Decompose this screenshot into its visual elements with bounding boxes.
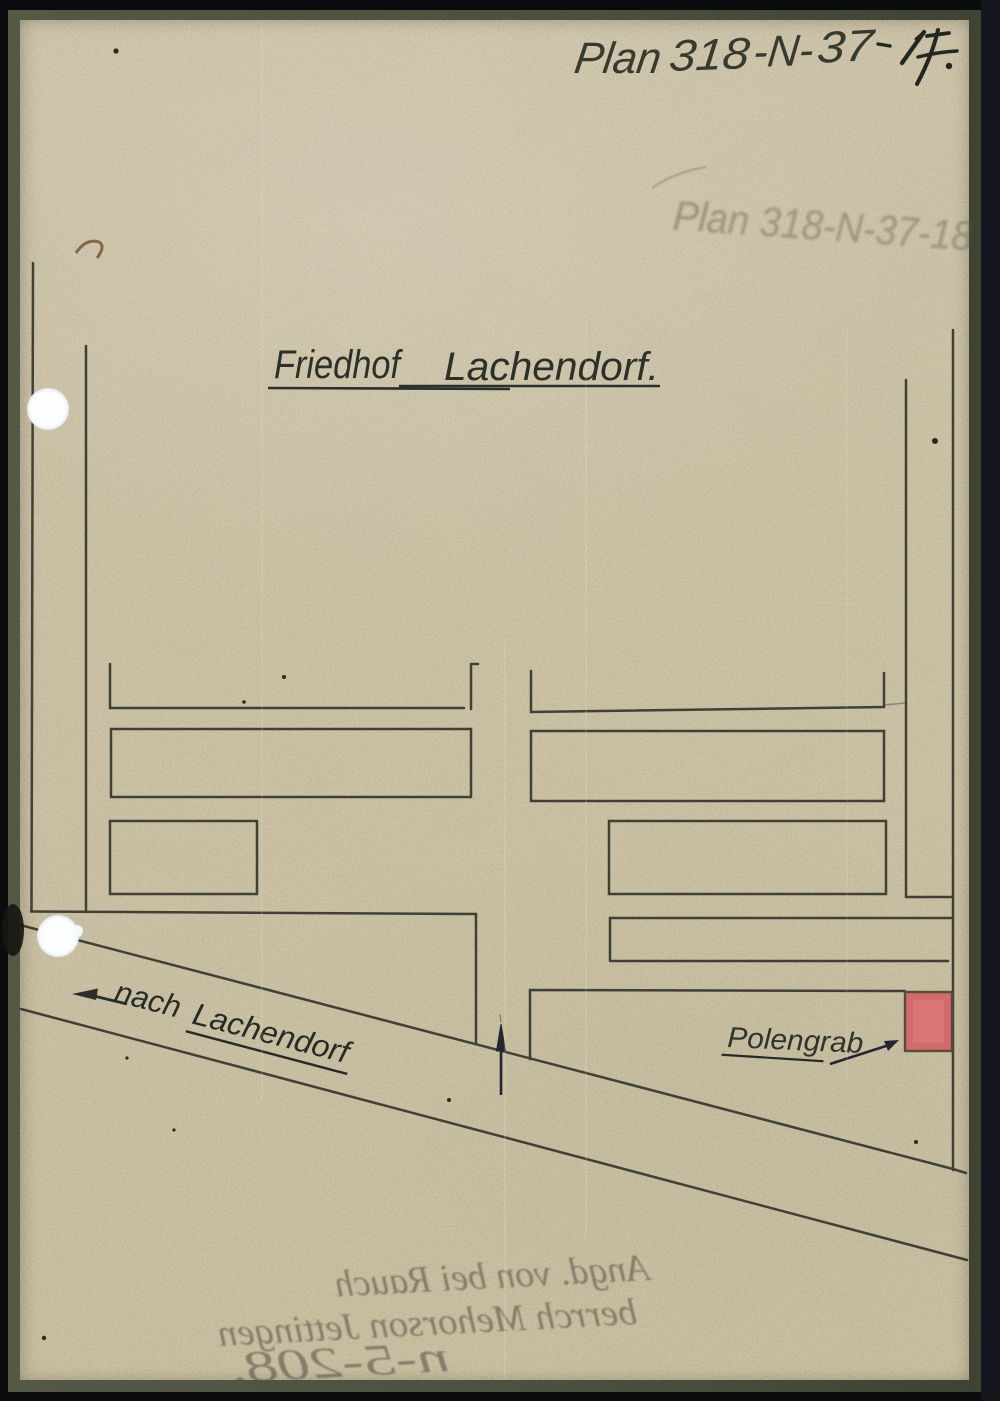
- svg-text:318: 318: [667, 29, 753, 81]
- svg-text:Polengrab: Polengrab: [727, 1022, 864, 1060]
- svg-text:37: 37: [815, 21, 877, 73]
- svg-text:n-5-208.: n-5-208.: [228, 1332, 450, 1392]
- svg-text:-N-: -N-: [751, 26, 816, 77]
- svg-text:Lachendorf.: Lachendorf.: [444, 345, 659, 389]
- svg-text:Friedhof: Friedhof: [274, 343, 403, 387]
- svg-text:Plan: Plan: [572, 34, 665, 83]
